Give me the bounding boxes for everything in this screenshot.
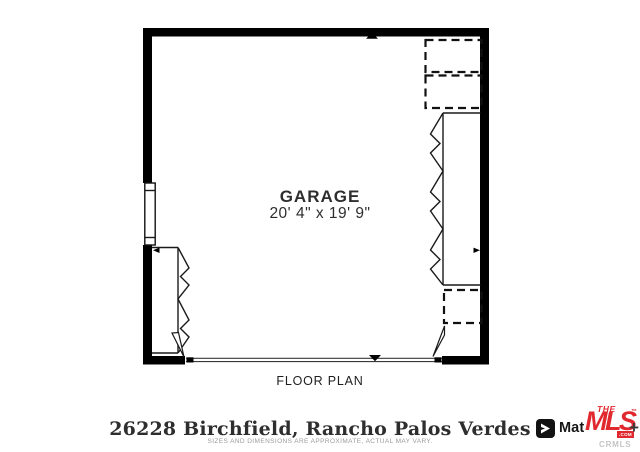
crmls-text: CRMLS	[599, 440, 631, 449]
overhead-storage-dashed	[426, 40, 482, 323]
left-storage-bifold	[152, 248, 189, 354]
room-dimensions: 20' 4" x 19' 9"	[0, 205, 640, 223]
matterport-icon	[536, 419, 555, 438]
disclaimer-text: SIZES AND DIMENSIONS ARE APPROXIMATE, AC…	[0, 438, 640, 445]
floor-plan-page: GARAGE 20' 4" x 19' 9" FLOOR PLAN 26228 …	[0, 0, 640, 452]
plan-caption: FLOOR PLAN	[0, 374, 640, 388]
door-leaves	[172, 326, 445, 357]
the-mls-logo: THE MLS ™ .com + CRMLS	[584, 401, 640, 452]
mls-plus-sign: +	[629, 419, 639, 436]
garage-door	[186, 357, 442, 362]
room-label: GARAGE	[0, 187, 640, 207]
mls-trademark: ™	[631, 409, 637, 415]
